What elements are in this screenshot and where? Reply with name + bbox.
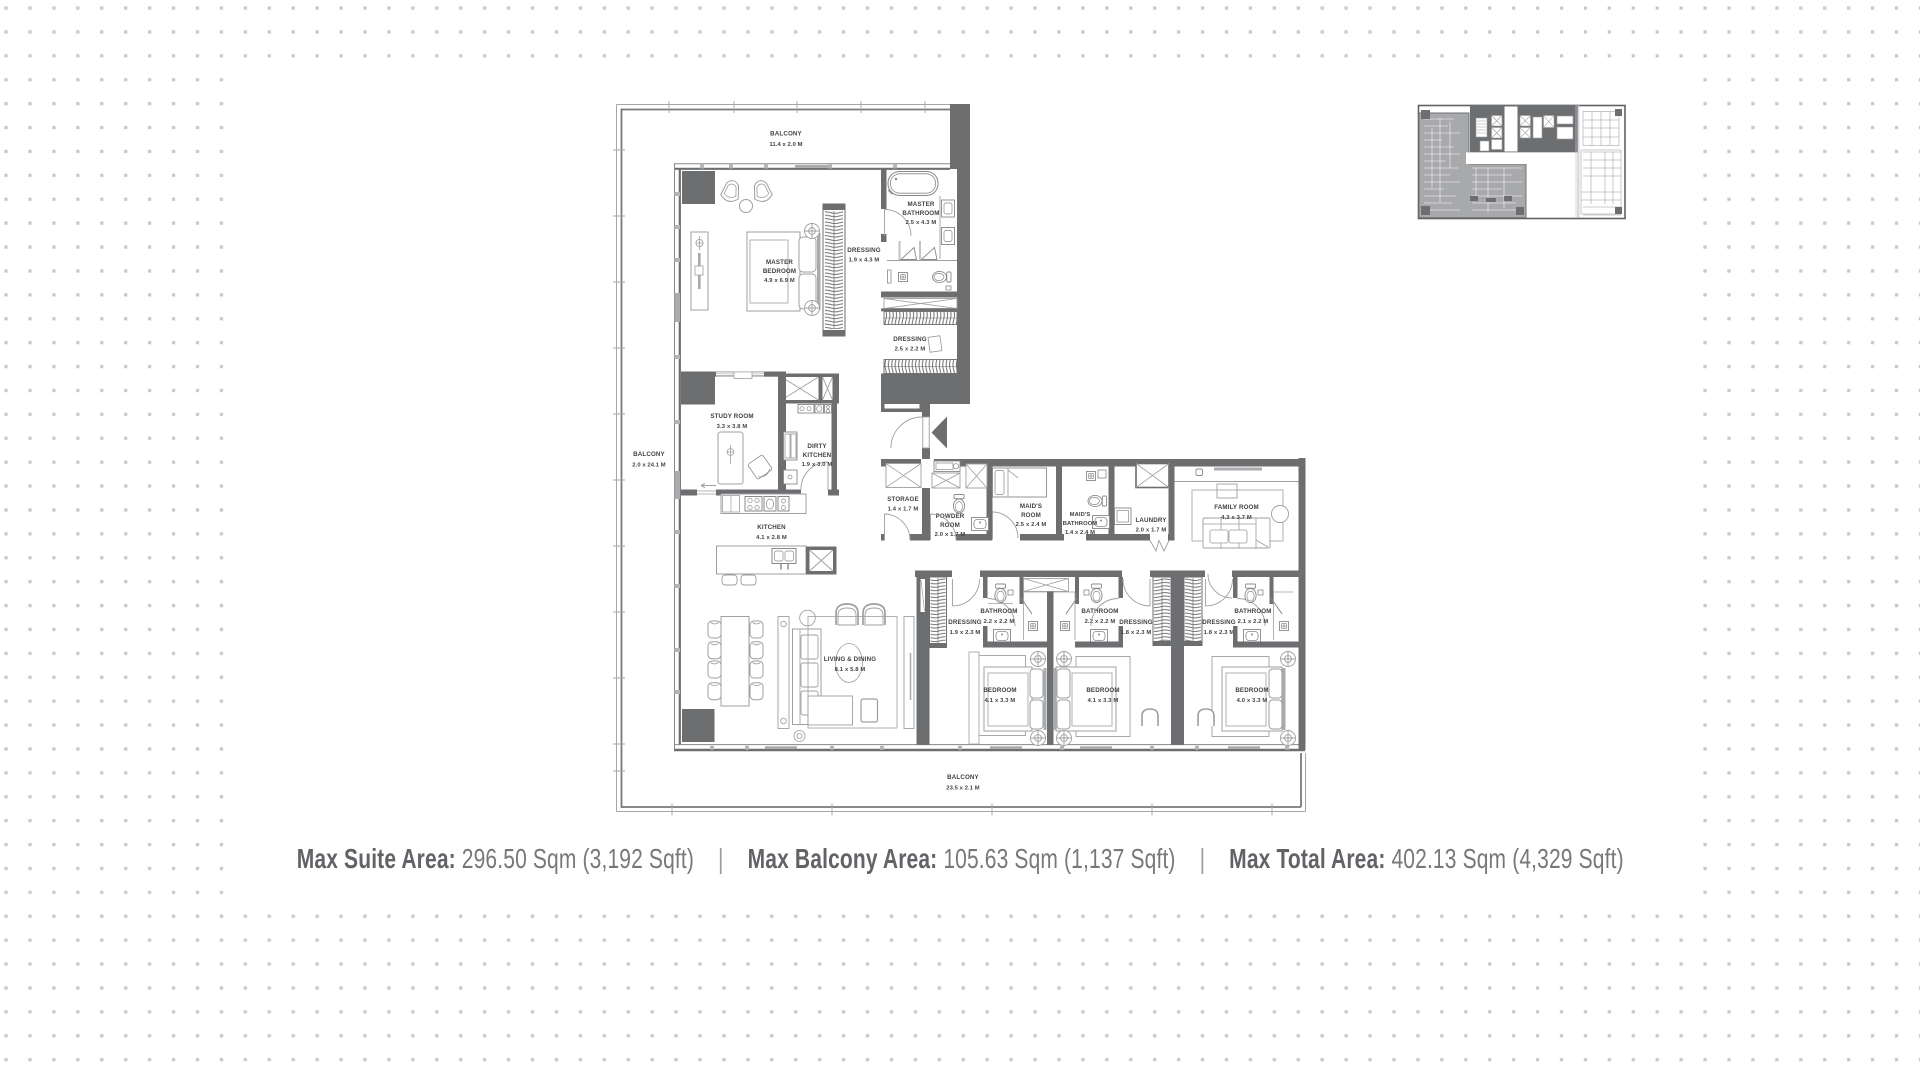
svg-text:BATHROOM: BATHROOM xyxy=(1063,521,1098,527)
svg-text:BALCONY: BALCONY xyxy=(947,774,979,781)
svg-text:DIRTY: DIRTY xyxy=(807,443,827,450)
svg-text:1.8 x 2.3 M: 1.8 x 2.3 M xyxy=(1204,630,1235,636)
svg-text:LAUNDRY: LAUNDRY xyxy=(1135,517,1167,524)
svg-text:BATHROOM: BATHROOM xyxy=(1234,608,1271,615)
svg-text:STUDY ROOM: STUDY ROOM xyxy=(710,413,753,420)
svg-text:LIVING & DINING: LIVING & DINING xyxy=(824,656,876,663)
svg-text:4.1 x 2.8 M: 4.1 x 2.8 M xyxy=(756,535,787,541)
svg-text:4.3 x 3.7 M: 4.3 x 3.7 M xyxy=(1221,515,1252,521)
svg-text:MAID'S: MAID'S xyxy=(1020,503,1042,510)
svg-text:11.4 x 2.0 M: 11.4 x 2.0 M xyxy=(769,142,802,148)
svg-text:MAID'S: MAID'S xyxy=(1070,512,1091,518)
svg-text:1.4 x 1.7 M: 1.4 x 1.7 M xyxy=(888,507,919,513)
svg-text:BALCONY: BALCONY xyxy=(633,451,665,458)
svg-text:DRESSING: DRESSING xyxy=(1119,619,1153,626)
svg-text:DRESSING: DRESSING xyxy=(893,336,927,343)
svg-text:MASTER: MASTER xyxy=(907,201,934,208)
svg-text:BALCONY: BALCONY xyxy=(770,131,802,138)
svg-text:BEDROOM: BEDROOM xyxy=(1086,687,1119,694)
svg-text:8.1 x 5.8 M: 8.1 x 5.8 M xyxy=(835,667,866,673)
svg-text:POWDER: POWDER xyxy=(936,513,965,520)
svg-text:1.9 x 4.3 M: 1.9 x 4.3 M xyxy=(849,258,880,264)
svg-text:1.9 x 3.0 M: 1.9 x 3.0 M xyxy=(802,462,833,468)
svg-text:2.0 x 24.1 M: 2.0 x 24.1 M xyxy=(632,463,665,469)
svg-text:3.3 x 3.8 M: 3.3 x 3.8 M xyxy=(717,424,748,430)
svg-text:FAMILY ROOM: FAMILY ROOM xyxy=(1214,504,1259,511)
svg-text:BEDROOM: BEDROOM xyxy=(983,687,1016,694)
svg-text:DRESSING: DRESSING xyxy=(1202,619,1236,626)
svg-text:ROOM: ROOM xyxy=(1021,512,1041,519)
svg-text:BEDROOM: BEDROOM xyxy=(1235,687,1268,694)
svg-text:STORAGE: STORAGE xyxy=(887,496,919,503)
svg-text:1.4 x 2.4 M: 1.4 x 2.4 M xyxy=(1065,530,1095,536)
svg-text:BATHROOM: BATHROOM xyxy=(1081,608,1118,615)
svg-text:KITCHEN: KITCHEN xyxy=(757,524,786,531)
svg-text:DRESSING: DRESSING xyxy=(847,247,881,254)
svg-text:4.1 x 3.3 M: 4.1 x 3.3 M xyxy=(1088,698,1119,704)
svg-text:23.5 x 2.1 M: 23.5 x 2.1 M xyxy=(946,786,979,792)
svg-text:2.5 x 4.3 M: 2.5 x 4.3 M xyxy=(906,220,937,226)
svg-text:BATHROOM: BATHROOM xyxy=(902,210,939,217)
svg-text:MASTER: MASTER xyxy=(766,259,793,266)
svg-text:KITCHEN: KITCHEN xyxy=(803,452,832,459)
svg-text:4.9 x 6.9 M: 4.9 x 6.9 M xyxy=(764,278,795,284)
svg-text:4.1 x 3.3 M: 4.1 x 3.3 M xyxy=(985,698,1016,704)
svg-text:2.0 x 1.7 M: 2.0 x 1.7 M xyxy=(1136,528,1167,534)
svg-text:2.1 x 2.2 M: 2.1 x 2.2 M xyxy=(1238,619,1269,625)
svg-text:BEDROOM: BEDROOM xyxy=(763,268,796,275)
svg-text:2.5 x 2.2 M: 2.5 x 2.2 M xyxy=(895,347,926,353)
svg-text:BATHROOM: BATHROOM xyxy=(980,608,1017,615)
svg-text:1.9 x 2.3 M: 1.9 x 2.3 M xyxy=(950,630,981,636)
svg-text:2.0 x 1.7 M: 2.0 x 1.7 M xyxy=(935,532,966,538)
svg-text:4.0 x 3.3 M: 4.0 x 3.3 M xyxy=(1237,698,1268,704)
svg-text:DRESSING: DRESSING xyxy=(948,619,982,626)
svg-text:1.8 x 2.3 M: 1.8 x 2.3 M xyxy=(1121,630,1152,636)
svg-text:2.5 x 2.4 M: 2.5 x 2.4 M xyxy=(1016,522,1047,528)
svg-text:2.2 x 2.2 M: 2.2 x 2.2 M xyxy=(984,619,1015,625)
svg-text:2.2 x 2.2 M: 2.2 x 2.2 M xyxy=(1085,619,1116,625)
